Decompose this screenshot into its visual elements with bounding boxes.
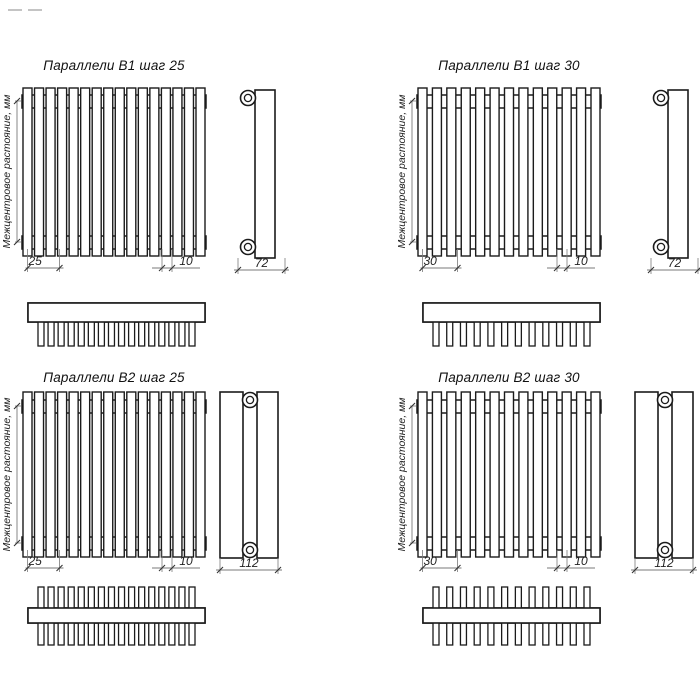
tube-stub xyxy=(570,587,576,609)
tube-stub xyxy=(488,321,494,346)
radiator-drawing-b1-step30: Межцентровое растояние, мм301072 xyxy=(350,52,700,352)
tube xyxy=(92,88,101,256)
tube-stub xyxy=(78,622,84,645)
side-body-rear-row xyxy=(257,392,278,558)
tube-stub xyxy=(570,321,576,346)
tube xyxy=(161,88,170,256)
corner-marks xyxy=(0,0,60,20)
tube xyxy=(533,88,542,256)
tube xyxy=(104,392,113,557)
tube-stub xyxy=(98,321,104,346)
side-body xyxy=(255,90,275,258)
panel-parallels-b1-step25: Параллели В1 шаг 25 Межцентровое растоян… xyxy=(0,52,350,362)
tube-stub xyxy=(88,587,94,609)
dimension-value: 30 xyxy=(424,254,438,268)
tube xyxy=(35,392,44,557)
tube xyxy=(23,392,32,557)
front-view xyxy=(417,88,601,256)
tube xyxy=(161,392,170,557)
tube xyxy=(447,88,456,256)
tube-stub xyxy=(38,622,44,645)
connection-port-inner xyxy=(246,396,253,403)
connection-port-inner xyxy=(661,546,668,553)
dimension-value: 10 xyxy=(179,254,193,268)
tube-stub xyxy=(159,321,165,346)
side-view xyxy=(635,392,693,558)
tube xyxy=(150,392,159,557)
tube xyxy=(184,392,193,557)
tube-stub xyxy=(58,321,64,346)
tube-stub xyxy=(447,622,453,645)
tube xyxy=(69,88,78,256)
tube xyxy=(23,88,32,256)
tube-stub xyxy=(48,321,54,346)
plan-view xyxy=(28,303,205,346)
tube xyxy=(490,88,499,256)
tube xyxy=(173,88,182,256)
center-distance-dimension: Межцентровое растояние, мм xyxy=(396,95,416,249)
tube-stub xyxy=(543,587,549,609)
tube xyxy=(115,88,124,256)
tube-stub xyxy=(129,622,135,645)
depth-dimension: 72 xyxy=(647,256,700,274)
tube-stub xyxy=(543,622,549,645)
connection-port-inner xyxy=(244,94,251,101)
tube xyxy=(591,392,600,557)
dimension-value: 25 xyxy=(28,254,43,268)
side-body xyxy=(668,90,688,258)
tube xyxy=(490,392,499,557)
tube-stub xyxy=(108,622,114,645)
tube-stub xyxy=(108,587,114,609)
tube xyxy=(184,88,193,256)
tube-stub xyxy=(139,321,145,346)
dimension-value: 10 xyxy=(574,254,588,268)
panel-parallels-b2-step25: Параллели В2 шаг 25 Межцентровое растоян… xyxy=(0,372,350,682)
tube-stub xyxy=(543,321,549,346)
plan-view xyxy=(423,303,600,346)
tube-stub xyxy=(38,587,44,609)
tube-stub xyxy=(529,622,535,645)
tube xyxy=(35,88,44,256)
tube-stub xyxy=(474,321,480,346)
tube-stub xyxy=(474,587,480,609)
dimension-value: 10 xyxy=(574,554,588,568)
tube xyxy=(461,392,470,557)
tube-stub xyxy=(129,587,135,609)
side-view xyxy=(241,90,276,258)
side-view xyxy=(220,392,278,558)
tube-stub xyxy=(529,321,535,346)
plan-collector xyxy=(28,608,205,623)
tube-stub xyxy=(129,321,135,346)
tube-stub xyxy=(169,587,175,609)
tube-stub xyxy=(488,587,494,609)
tube xyxy=(104,88,113,256)
tube-stub xyxy=(78,587,84,609)
connection-port-inner xyxy=(246,546,253,553)
side-body-rear-row xyxy=(672,392,693,558)
front-view xyxy=(417,392,601,557)
tube-stub xyxy=(460,321,466,346)
tube-stub xyxy=(38,321,44,346)
dimension-value: 25 xyxy=(28,554,43,568)
tube-stub xyxy=(179,622,185,645)
tube-stub xyxy=(584,622,590,645)
tube-stub xyxy=(98,622,104,645)
side-body-front-row xyxy=(635,392,658,558)
radiator-drawing-b2-step25: Межцентровое растояние, мм2510112 xyxy=(0,372,350,667)
tube-stub xyxy=(48,622,54,645)
tube xyxy=(115,392,124,557)
tube-stub xyxy=(488,622,494,645)
tube xyxy=(519,88,528,256)
tube-stub xyxy=(584,321,590,346)
tube xyxy=(46,392,55,557)
tube xyxy=(432,392,441,557)
tube xyxy=(127,392,136,557)
depth-dimension: 72 xyxy=(234,256,289,274)
tube xyxy=(46,88,55,256)
side-view xyxy=(654,90,689,258)
tube-stub xyxy=(570,622,576,645)
tube-stub xyxy=(119,587,125,609)
tube-stub xyxy=(502,587,508,609)
tube xyxy=(81,392,90,557)
panel-parallels-b2-step30: Параллели В2 шаг 30 Межцентровое растоян… xyxy=(350,372,700,682)
tube-stub xyxy=(515,321,521,346)
axis-label: Межцентровое растояние, мм xyxy=(396,95,408,249)
tube-stub xyxy=(119,622,125,645)
tube-stub xyxy=(119,321,125,346)
tube-stub xyxy=(515,622,521,645)
tube-stub xyxy=(98,587,104,609)
dimension-value: 72 xyxy=(668,256,682,270)
drawing-canvas: Параллели В1 шаг 25 Межцентровое растоян… xyxy=(0,0,700,700)
tube-stub xyxy=(474,622,480,645)
tube xyxy=(432,88,441,256)
tube xyxy=(505,88,514,256)
dimension-value: 112 xyxy=(239,556,258,570)
tube xyxy=(577,392,586,557)
tube-stub xyxy=(179,587,185,609)
tube xyxy=(562,392,571,557)
tube-stub xyxy=(189,587,195,609)
plan-collector xyxy=(423,608,600,623)
tube xyxy=(577,88,586,256)
tube-stub xyxy=(159,622,165,645)
dimension-value: 30 xyxy=(424,554,438,568)
tube xyxy=(58,88,67,256)
tube-stub xyxy=(68,622,74,645)
tube-stub xyxy=(48,587,54,609)
tube-stub xyxy=(149,622,155,645)
tube-stub xyxy=(502,622,508,645)
radiator-drawing-b2-step30: Межцентровое растояние, мм3010112 xyxy=(350,372,700,667)
tube-stub xyxy=(189,622,195,645)
center-distance-dimension: Межцентровое растояние, мм xyxy=(1,95,21,249)
tube-stub xyxy=(447,321,453,346)
tube-stub xyxy=(58,587,64,609)
center-distance-dimension: Межцентровое растояние, мм xyxy=(396,398,416,552)
tube xyxy=(92,392,101,557)
tube-stub xyxy=(169,321,175,346)
plan-collector xyxy=(28,303,205,322)
tube xyxy=(127,88,136,256)
connection-port-inner xyxy=(661,396,668,403)
tube-stub xyxy=(139,622,145,645)
tube-stub xyxy=(584,587,590,609)
tube xyxy=(548,392,557,557)
tube-stub xyxy=(515,587,521,609)
tube-stub xyxy=(78,321,84,346)
tube xyxy=(196,88,205,256)
tube-stub xyxy=(529,587,535,609)
tube xyxy=(447,392,456,557)
radiator-drawing-b1-step25: Межцентровое растояние, мм251072 xyxy=(0,52,350,352)
connection-port-inner xyxy=(657,243,664,250)
tube xyxy=(591,88,600,256)
connection-port-inner xyxy=(657,94,664,101)
tube xyxy=(196,392,205,557)
axis-label: Межцентровое растояние, мм xyxy=(1,398,13,552)
tube xyxy=(418,88,427,256)
connection-port-inner xyxy=(244,243,251,250)
center-distance-dimension: Межцентровое растояние, мм xyxy=(1,398,21,552)
dimension-value: 72 xyxy=(255,256,269,270)
tube xyxy=(562,88,571,256)
tube xyxy=(81,88,90,256)
tube-stub xyxy=(88,622,94,645)
axis-label: Межцентровое растояние, мм xyxy=(1,95,13,249)
tube-stub xyxy=(68,321,74,346)
tube-stub xyxy=(433,622,439,645)
tube-stub xyxy=(447,587,453,609)
dimension-value: 10 xyxy=(179,554,193,568)
plan-view xyxy=(423,587,600,645)
plan-view xyxy=(28,587,205,645)
tube-stub xyxy=(108,321,114,346)
dimension-value: 112 xyxy=(654,556,673,570)
front-view xyxy=(22,392,206,557)
plan-collector xyxy=(423,303,600,322)
tube-stub xyxy=(557,321,563,346)
tube xyxy=(505,392,514,557)
tube-stub xyxy=(88,321,94,346)
tube-stub xyxy=(159,587,165,609)
tube-stub xyxy=(433,587,439,609)
tube xyxy=(461,88,470,256)
tube-stub xyxy=(149,587,155,609)
axis-label: Межцентровое растояние, мм xyxy=(396,398,408,552)
tube-stub xyxy=(179,321,185,346)
tube xyxy=(138,392,147,557)
tube xyxy=(418,392,427,557)
panel-parallels-b1-step30: Параллели В1 шаг 30 Межцентровое растоян… xyxy=(350,52,700,362)
tube-stub xyxy=(460,622,466,645)
tube-stub xyxy=(58,622,64,645)
side-body-front-row xyxy=(220,392,243,558)
tube-stub xyxy=(557,587,563,609)
tube xyxy=(533,392,542,557)
front-view xyxy=(22,88,206,256)
tube xyxy=(150,88,159,256)
tube xyxy=(138,88,147,256)
tube-stub xyxy=(68,587,74,609)
tube-stub xyxy=(149,321,155,346)
tube xyxy=(519,392,528,557)
tube-stub xyxy=(169,622,175,645)
tube xyxy=(173,392,182,557)
tube-stub xyxy=(460,587,466,609)
tube xyxy=(476,88,485,256)
tube xyxy=(548,88,557,256)
tube-stub xyxy=(433,321,439,346)
tube xyxy=(58,392,67,557)
tube xyxy=(476,392,485,557)
tube-stub xyxy=(189,321,195,346)
tube xyxy=(69,392,78,557)
tube-stub xyxy=(502,321,508,346)
tube-stub xyxy=(139,587,145,609)
tube-stub xyxy=(557,622,563,645)
